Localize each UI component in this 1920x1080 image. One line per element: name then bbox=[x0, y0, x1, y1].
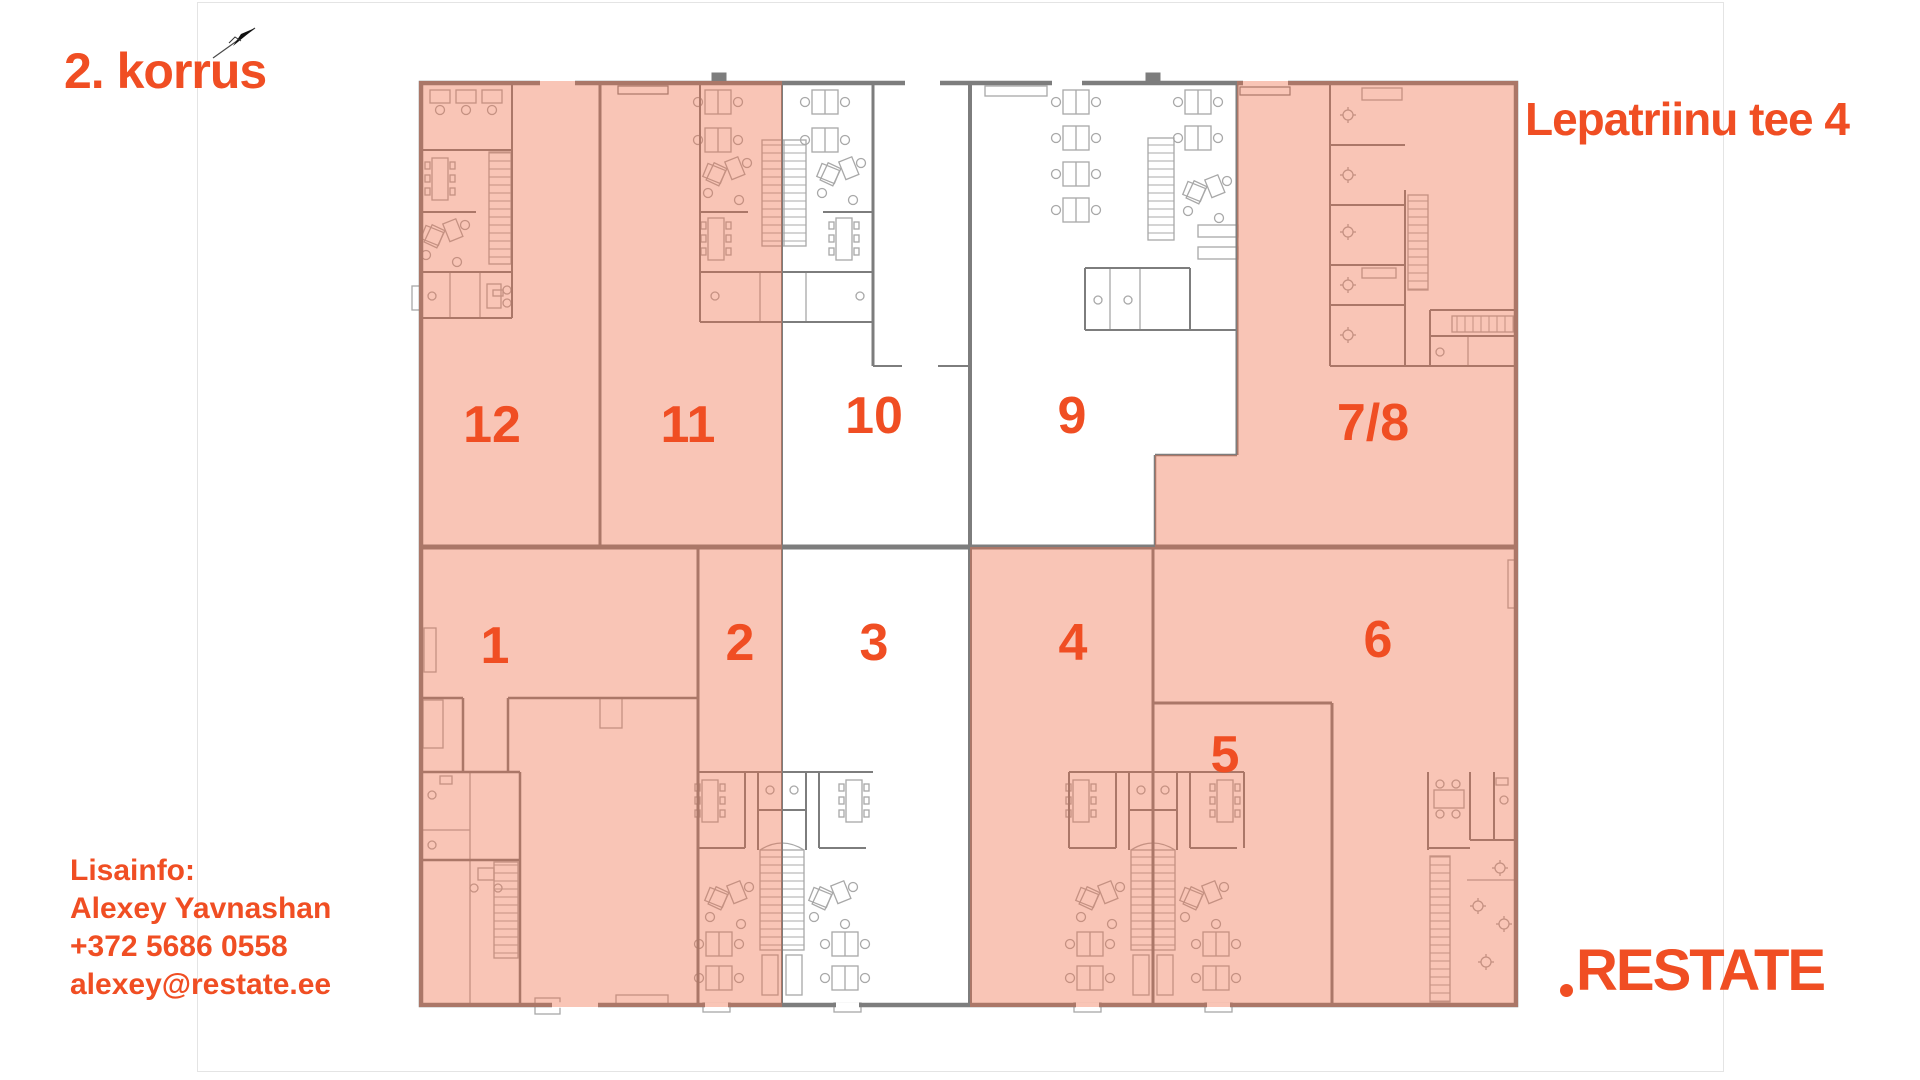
unit-label-12: 12 bbox=[463, 399, 521, 451]
contact-heading: Lisainfo: bbox=[70, 852, 331, 890]
unit-region-11 bbox=[600, 81, 782, 547]
contact-name: Alexey Yavnashan bbox=[70, 890, 331, 928]
unit-label-3: 3 bbox=[860, 617, 889, 669]
unit-label-5: 5 bbox=[1211, 729, 1240, 781]
unit-label-1: 1 bbox=[481, 620, 510, 672]
unit-label-11: 11 bbox=[661, 399, 716, 451]
unit-label-9: 9 bbox=[1058, 390, 1087, 442]
logo-dot-icon bbox=[1560, 984, 1573, 997]
contact-info: Lisainfo: Alexey Yavnashan +372 5686 055… bbox=[70, 852, 331, 1004]
address-title: Lepatriinu tee 4 bbox=[1525, 96, 1849, 142]
unit-label-7-8: 7/8 bbox=[1337, 397, 1409, 449]
unit-region-12 bbox=[419, 81, 600, 547]
unit-label-10: 10 bbox=[845, 390, 903, 442]
unit-overlays bbox=[419, 81, 1518, 1007]
logo-text: RESTATE bbox=[1576, 942, 1824, 1000]
unit-region-5 bbox=[1153, 703, 1332, 1007]
contact-email: alexey@restate.ee bbox=[70, 966, 331, 1004]
unit-label-6: 6 bbox=[1364, 614, 1393, 666]
unit-label-2: 2 bbox=[726, 617, 755, 669]
restate-logo: RESTATE bbox=[1560, 942, 1824, 1000]
floorplan-page: 12111097/8123456 2. korrus Lepatriinu te… bbox=[0, 0, 1920, 1080]
floor-title: 2. korrus bbox=[64, 46, 266, 96]
unit-region-10 bbox=[782, 81, 970, 547]
unit-region-1 bbox=[419, 547, 698, 1007]
contact-phone: +372 5686 0558 bbox=[70, 928, 331, 966]
unit-label-4: 4 bbox=[1059, 617, 1088, 669]
